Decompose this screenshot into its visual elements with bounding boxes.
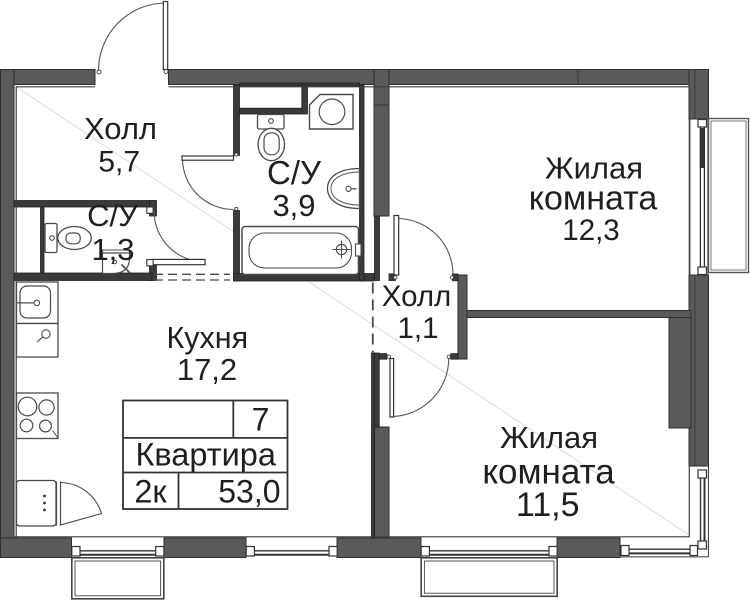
svg-text:1,1: 1,1: [397, 312, 438, 345]
svg-text:17,2: 17,2: [177, 352, 237, 387]
svg-text:Квартира: Квартира: [135, 437, 276, 473]
svg-text:комната: комната: [529, 179, 658, 217]
svg-text:2к: 2к: [134, 474, 167, 510]
svg-text:11,5: 11,5: [516, 486, 580, 524]
svg-text:3,9: 3,9: [272, 188, 315, 223]
svg-text:5,7: 5,7: [98, 146, 140, 179]
svg-text:Холл: Холл: [382, 280, 452, 313]
svg-text:С/У: С/У: [87, 198, 138, 233]
svg-text:Кухня: Кухня: [166, 321, 248, 355]
svg-text:7: 7: [252, 402, 270, 438]
svg-text:Холл: Холл: [84, 111, 157, 146]
svg-text:Жилая: Жилая: [500, 420, 598, 455]
svg-text:53,0: 53,0: [218, 474, 280, 510]
svg-text:12,3: 12,3: [562, 214, 619, 247]
svg-text:1,3: 1,3: [91, 232, 134, 267]
svg-text:С/У: С/У: [267, 154, 322, 191]
